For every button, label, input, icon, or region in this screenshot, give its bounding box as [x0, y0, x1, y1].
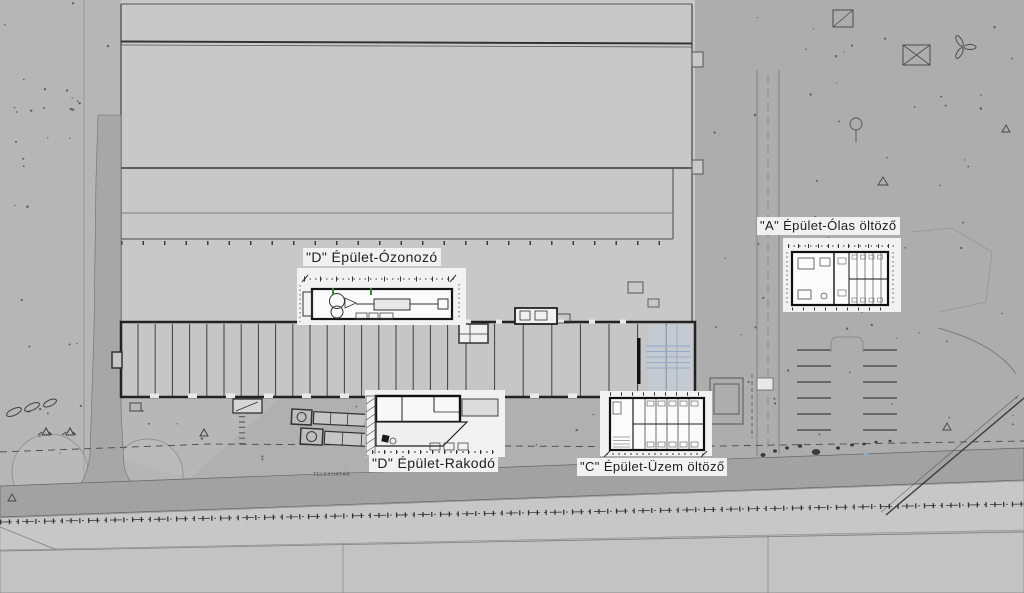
crane-zone	[648, 325, 692, 395]
hall-notch-2	[692, 160, 703, 174]
callout-olas-plan	[783, 238, 901, 312]
property-line-annotation: TELEKHATÁR	[313, 471, 350, 478]
west-wall-bump	[112, 352, 122, 368]
label-ozonozo: "D" Épület-Ózonozó	[303, 248, 441, 266]
site-plan-svg: TELEKHATÁR	[0, 0, 1024, 593]
callout-ozonozo-plan	[297, 268, 466, 325]
label-rakodo: "D" Épület-Rakodó	[369, 454, 498, 472]
callout-uzem-plan	[600, 391, 712, 457]
hydrant-dot	[864, 453, 869, 458]
hall-notch-1	[692, 52, 703, 67]
label-uzem-oltozo: "C" Épület-Üzem öltöző	[577, 458, 727, 476]
dark-equipment-bar	[637, 338, 641, 384]
callout-rakodo-plan	[365, 390, 505, 457]
yard-shed	[757, 378, 773, 390]
site-plan-page: TELEKHATÁR "D" Épület-Ózonozó "D" Épület…	[0, 0, 1024, 593]
east-yard	[695, 0, 1024, 475]
interior-rooms-block	[459, 324, 488, 343]
label-olas-oltozo: "A" Épület-Ólas öltöző	[757, 217, 900, 235]
